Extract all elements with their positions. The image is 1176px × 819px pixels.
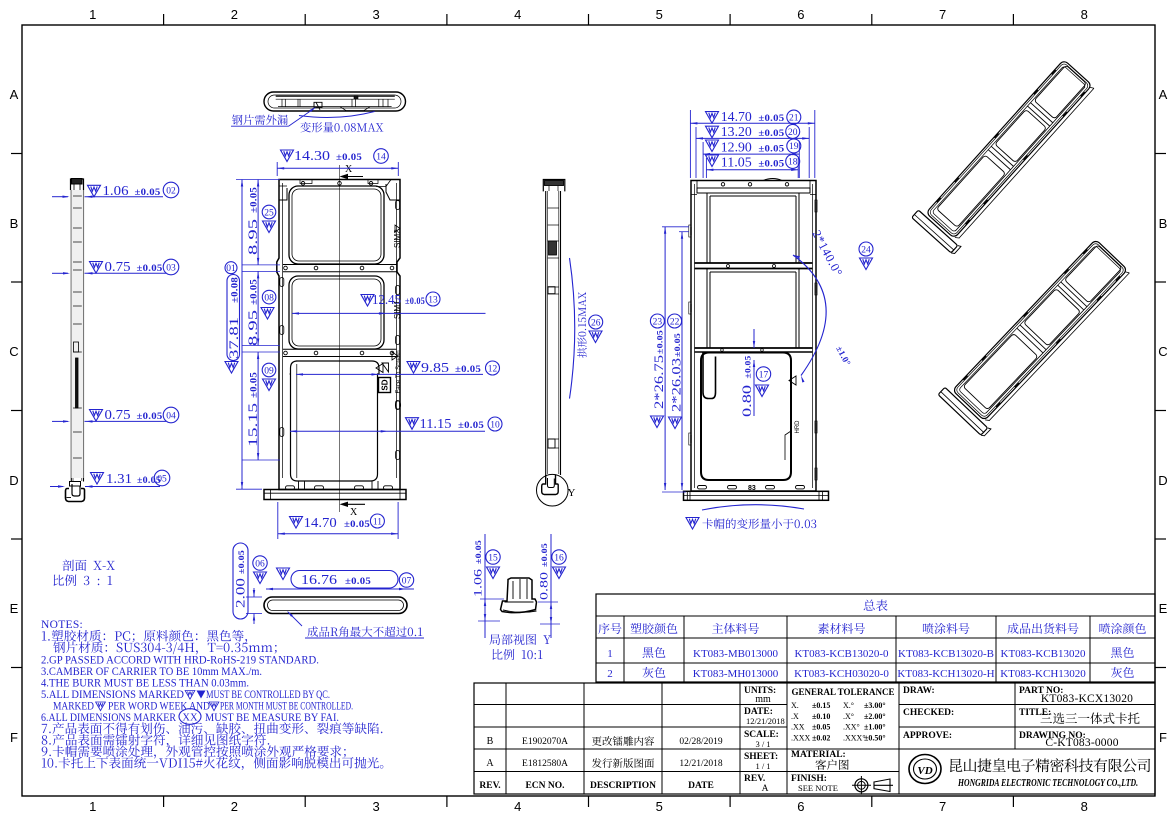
svg-text:±1.0°: ±1.0° — [834, 344, 853, 367]
svg-text:C-KT083-0000: C-KT083-0000 — [1045, 737, 1118, 749]
svg-text:D: D — [1158, 473, 1167, 488]
svg-text:4: 4 — [514, 799, 521, 814]
svg-text:15.15: 15.15 — [245, 403, 260, 447]
svg-text:SD: SD — [381, 379, 390, 390]
svg-text:±0.05: ±0.05 — [135, 187, 161, 197]
svg-text:±0.05: ±0.05 — [655, 330, 665, 354]
svg-text:KT083-KCB13020-0: KT083-KCB13020-0 — [794, 648, 889, 660]
svg-text:5.ALL DIMENSIONS MARKED: 5.ALL DIMENSIONS MARKED — [41, 689, 184, 701]
svg-text:7: 7 — [939, 7, 946, 22]
svg-text:.X: .X — [791, 712, 799, 721]
svg-text:04: 04 — [166, 411, 176, 421]
svg-text:DRAW:: DRAW: — [903, 686, 935, 696]
svg-text:14.30: 14.30 — [294, 148, 330, 163]
svg-text:B: B — [10, 216, 19, 231]
svg-text:±0.05: ±0.05 — [743, 356, 753, 379]
svg-text:KT083-KCH03020-0: KT083-KCH03020-0 — [794, 668, 889, 680]
svg-text:PER WORD WEEK AND: PER WORD WEEK AND — [108, 701, 210, 713]
svg-text:37.81: 37.81 — [226, 317, 241, 359]
svg-text:9.85: 9.85 — [421, 360, 449, 375]
svg-text:.XX: .XX — [791, 723, 805, 732]
svg-text:17: 17 — [759, 370, 769, 380]
svg-text:±0.05: ±0.05 — [336, 152, 362, 162]
svg-text:6: 6 — [797, 7, 804, 22]
svg-text:mm: mm — [755, 694, 771, 705]
svg-text:±0.05: ±0.05 — [540, 543, 549, 567]
svg-text:8.95: 8.95 — [245, 310, 260, 346]
svg-text:C: C — [1158, 344, 1167, 359]
svg-text:24: 24 — [861, 245, 871, 255]
svg-text:CHECKED:: CHECKED: — [903, 708, 954, 718]
svg-text:±2.00°: ±2.00° — [864, 712, 886, 721]
svg-text:±0.05: ±0.05 — [758, 144, 784, 154]
svg-text:±3.00°: ±3.00° — [864, 701, 886, 710]
svg-text:11.15: 11.15 — [420, 416, 452, 431]
svg-text:NOTES:: NOTES: — [41, 619, 83, 631]
svg-text:KT083-MH013000: KT083-MH013000 — [693, 668, 779, 680]
svg-text:16: 16 — [554, 553, 564, 563]
svg-text:3: 3 — [372, 799, 379, 814]
svg-text:±0.05: ±0.05 — [236, 550, 246, 574]
svg-text:APPROVE:: APPROVE: — [903, 731, 952, 741]
svg-text:±0.05: ±0.05 — [812, 723, 830, 732]
svg-text:X: X — [345, 164, 353, 175]
svg-text:REV.: REV. — [744, 774, 765, 784]
svg-text:19: 19 — [789, 142, 799, 152]
svg-text:±0.05: ±0.05 — [758, 113, 784, 123]
svg-text:1.31: 1.31 — [106, 471, 132, 486]
svg-text:2*26.03: 2*26.03 — [670, 358, 684, 412]
svg-text:SIM2: SIM2 — [393, 229, 402, 248]
svg-text:1 / 1: 1 / 1 — [755, 761, 770, 771]
svg-text:26: 26 — [591, 318, 601, 328]
svg-text:21: 21 — [789, 113, 799, 123]
svg-text:±0.10: ±0.10 — [812, 712, 830, 721]
svg-text:±0.05: ±0.05 — [455, 364, 481, 374]
svg-text:Y: Y — [568, 487, 576, 499]
svg-text:0.75: 0.75 — [105, 259, 131, 274]
svg-text:HRD: HRD — [795, 420, 801, 434]
svg-text:0.75: 0.75 — [105, 407, 131, 422]
svg-text:DESCRIPTION: DESCRIPTION — [590, 781, 656, 791]
svg-text:23: 23 — [653, 317, 663, 327]
svg-text:14.70: 14.70 — [721, 109, 752, 124]
svg-text:C: C — [9, 344, 18, 359]
svg-text:B: B — [1159, 216, 1168, 231]
svg-text:10: 10 — [490, 420, 500, 430]
svg-text:D: D — [9, 473, 18, 488]
svg-text:A: A — [762, 784, 769, 794]
svg-text:5: 5 — [656, 799, 663, 814]
svg-text:3.CAMBER OF CARRIER TO BE 10mm: 3.CAMBER OF CARRIER TO BE 10mm MAX./m. — [41, 666, 262, 678]
svg-text:.XX°: .XX° — [843, 723, 860, 732]
svg-text:5: 5 — [656, 7, 663, 22]
svg-text:2: 2 — [231, 7, 238, 22]
svg-text:±0.05: ±0.05 — [758, 128, 784, 138]
svg-text:3 / 1: 3 / 1 — [755, 739, 770, 749]
svg-text:20: 20 — [788, 128, 798, 138]
svg-text:VD: VD — [917, 765, 932, 777]
svg-text:13.20: 13.20 — [721, 124, 752, 139]
svg-text:02: 02 — [166, 186, 176, 196]
svg-text:8.95: 8.95 — [245, 219, 260, 255]
svg-text:±0.05: ±0.05 — [474, 540, 483, 564]
svg-text:09: 09 — [264, 366, 274, 376]
svg-text:REV.: REV. — [479, 781, 500, 791]
svg-text:±0.05: ±0.05 — [345, 576, 371, 586]
svg-text:B: B — [487, 736, 494, 747]
svg-text:PER MONTH MUST BE CONTROLLED.: PER MONTH MUST BE CONTROLLED. — [220, 701, 353, 713]
svg-text:1.06: 1.06 — [473, 569, 485, 597]
svg-text:ECN NO.: ECN NO. — [525, 781, 564, 791]
svg-text:KT083-MB013000: KT083-MB013000 — [693, 648, 778, 660]
svg-text:MUST BE MEASURE BY FAI.: MUST BE MEASURE BY FAI. — [205, 712, 339, 724]
svg-text:E: E — [1159, 601, 1168, 616]
svg-text:±0.05: ±0.05 — [137, 263, 163, 273]
svg-text:X.: X. — [791, 701, 799, 710]
svg-text:7: 7 — [939, 799, 946, 814]
svg-text:.XXX: .XXX — [791, 733, 811, 742]
svg-text:25: 25 — [264, 208, 274, 218]
svg-text:E: E — [10, 601, 19, 616]
svg-text:MARKED: MARKED — [53, 701, 94, 713]
svg-text:±0.05: ±0.05 — [405, 296, 425, 306]
svg-text:0.80: 0.80 — [740, 385, 754, 417]
svg-text:1: 1 — [607, 648, 613, 660]
svg-text:11.05: 11.05 — [721, 155, 752, 170]
svg-text:KT083-KCX13020: KT083-KCX13020 — [1041, 693, 1133, 705]
svg-text:1: 1 — [89, 7, 96, 22]
svg-text:12/21/2018: 12/21/2018 — [679, 759, 723, 769]
svg-text:±0.08: ±0.08 — [230, 277, 240, 303]
svg-text:A: A — [1159, 87, 1168, 102]
svg-text:14: 14 — [376, 152, 386, 162]
svg-text:2: 2 — [231, 799, 238, 814]
svg-text:A: A — [486, 758, 494, 769]
svg-text:MUST BE CONTROLLED BY QC.: MUST BE CONTROLLED BY QC. — [206, 689, 330, 701]
svg-text:6: 6 — [797, 799, 804, 814]
svg-text:±1.00°: ±1.00° — [864, 723, 886, 732]
svg-text:XX: XX — [182, 713, 198, 724]
svg-text:±0.05: ±0.05 — [672, 333, 682, 357]
svg-text:2*140.0°: 2*140.0° — [809, 228, 845, 279]
svg-text:05: 05 — [157, 474, 167, 484]
svg-text:±0.05: ±0.05 — [137, 411, 163, 421]
svg-text:Face To Screen: Face To Screen — [395, 350, 402, 394]
svg-text:12.45: 12.45 — [372, 292, 401, 307]
svg-text:14.70: 14.70 — [304, 515, 337, 530]
svg-text:06: 06 — [255, 559, 265, 569]
svg-text:.X°: .X° — [843, 712, 854, 721]
svg-text:E1902070A: E1902070A — [522, 737, 568, 747]
svg-text:22: 22 — [670, 317, 680, 327]
svg-text:KT083-KCB13020: KT083-KCB13020 — [1001, 648, 1086, 660]
svg-text:TITLE:: TITLE: — [1019, 708, 1051, 718]
svg-text:4.THE BURR MUST BE LESS THAN 0: 4.THE BURR MUST BE LESS THAN 0.03mm. — [41, 678, 249, 690]
svg-text:X: X — [350, 507, 358, 518]
svg-text:±0.05: ±0.05 — [344, 519, 370, 529]
svg-text:E1812580A: E1812580A — [522, 759, 568, 769]
svg-text:2*26.75: 2*26.75 — [652, 355, 666, 409]
svg-text:12: 12 — [488, 364, 498, 374]
svg-text:08: 08 — [264, 293, 274, 303]
svg-text:2.00: 2.00 — [234, 578, 248, 608]
svg-text:16.76: 16.76 — [301, 572, 337, 587]
svg-text:±0.02: ±0.02 — [812, 733, 830, 742]
svg-text:8: 8 — [1081, 799, 1088, 814]
svg-text:0.80: 0.80 — [539, 572, 551, 600]
svg-text:.XXX°: .XXX° — [843, 733, 866, 742]
svg-text:X.°: X.° — [843, 701, 854, 710]
svg-text:12.90: 12.90 — [721, 140, 752, 155]
svg-text:1.06: 1.06 — [103, 183, 129, 198]
svg-text:HONGRIDA ELECTRONIC TECHNOLOGY: HONGRIDA ELECTRONIC TECHNOLOGY CO.,LTD. — [957, 778, 1138, 789]
svg-text:F: F — [10, 730, 18, 745]
svg-text:±0.05: ±0.05 — [249, 372, 259, 398]
svg-text:18: 18 — [788, 158, 798, 168]
svg-text:DATE: DATE — [688, 781, 714, 791]
svg-text:13: 13 — [428, 295, 438, 305]
svg-text:6.ALL DIMENSIONS MARKER: 6.ALL DIMENSIONS MARKER — [41, 712, 176, 724]
svg-text:2.GP PASSED ACCORD WITH HRD-Ro: 2.GP PASSED ACCORD WITH HRD-RoHS-219 STA… — [41, 655, 319, 667]
svg-text:12/21/2018: 12/21/2018 — [746, 716, 785, 726]
svg-text:03: 03 — [166, 263, 176, 273]
svg-text:01: 01 — [226, 264, 236, 274]
svg-text:±0.05: ±0.05 — [249, 279, 259, 305]
svg-text:4: 4 — [514, 7, 521, 22]
svg-text:1: 1 — [89, 799, 96, 814]
svg-text:MATERIAL:: MATERIAL: — [791, 750, 846, 760]
svg-text:KT083-KCH13020-H: KT083-KCH13020-H — [897, 668, 994, 680]
svg-text:07: 07 — [402, 576, 412, 586]
svg-text:±0.05: ±0.05 — [249, 187, 259, 213]
svg-text:02/28/2019: 02/28/2019 — [679, 737, 723, 747]
svg-text:8: 8 — [1081, 7, 1088, 22]
svg-text:15: 15 — [488, 553, 498, 563]
svg-text:±0.05: ±0.05 — [758, 159, 784, 169]
svg-text:11: 11 — [373, 517, 382, 527]
svg-text:±0.50°: ±0.50° — [864, 733, 886, 742]
svg-text:±0.05: ±0.05 — [458, 420, 484, 430]
svg-text:2: 2 — [607, 668, 613, 680]
svg-text:A: A — [10, 87, 19, 102]
svg-text:KT083-KCH13020: KT083-KCH13020 — [1000, 668, 1086, 680]
svg-text:GENERAL TOLERANCE: GENERAL TOLERANCE — [792, 687, 895, 697]
svg-text:SEE NOTE: SEE NOTE — [798, 783, 838, 793]
svg-text:±0.15: ±0.15 — [812, 701, 830, 710]
svg-text:3: 3 — [372, 7, 379, 22]
svg-text:KT083-KCB13020-B: KT083-KCB13020-B — [898, 648, 994, 660]
svg-text:F: F — [1159, 730, 1167, 745]
